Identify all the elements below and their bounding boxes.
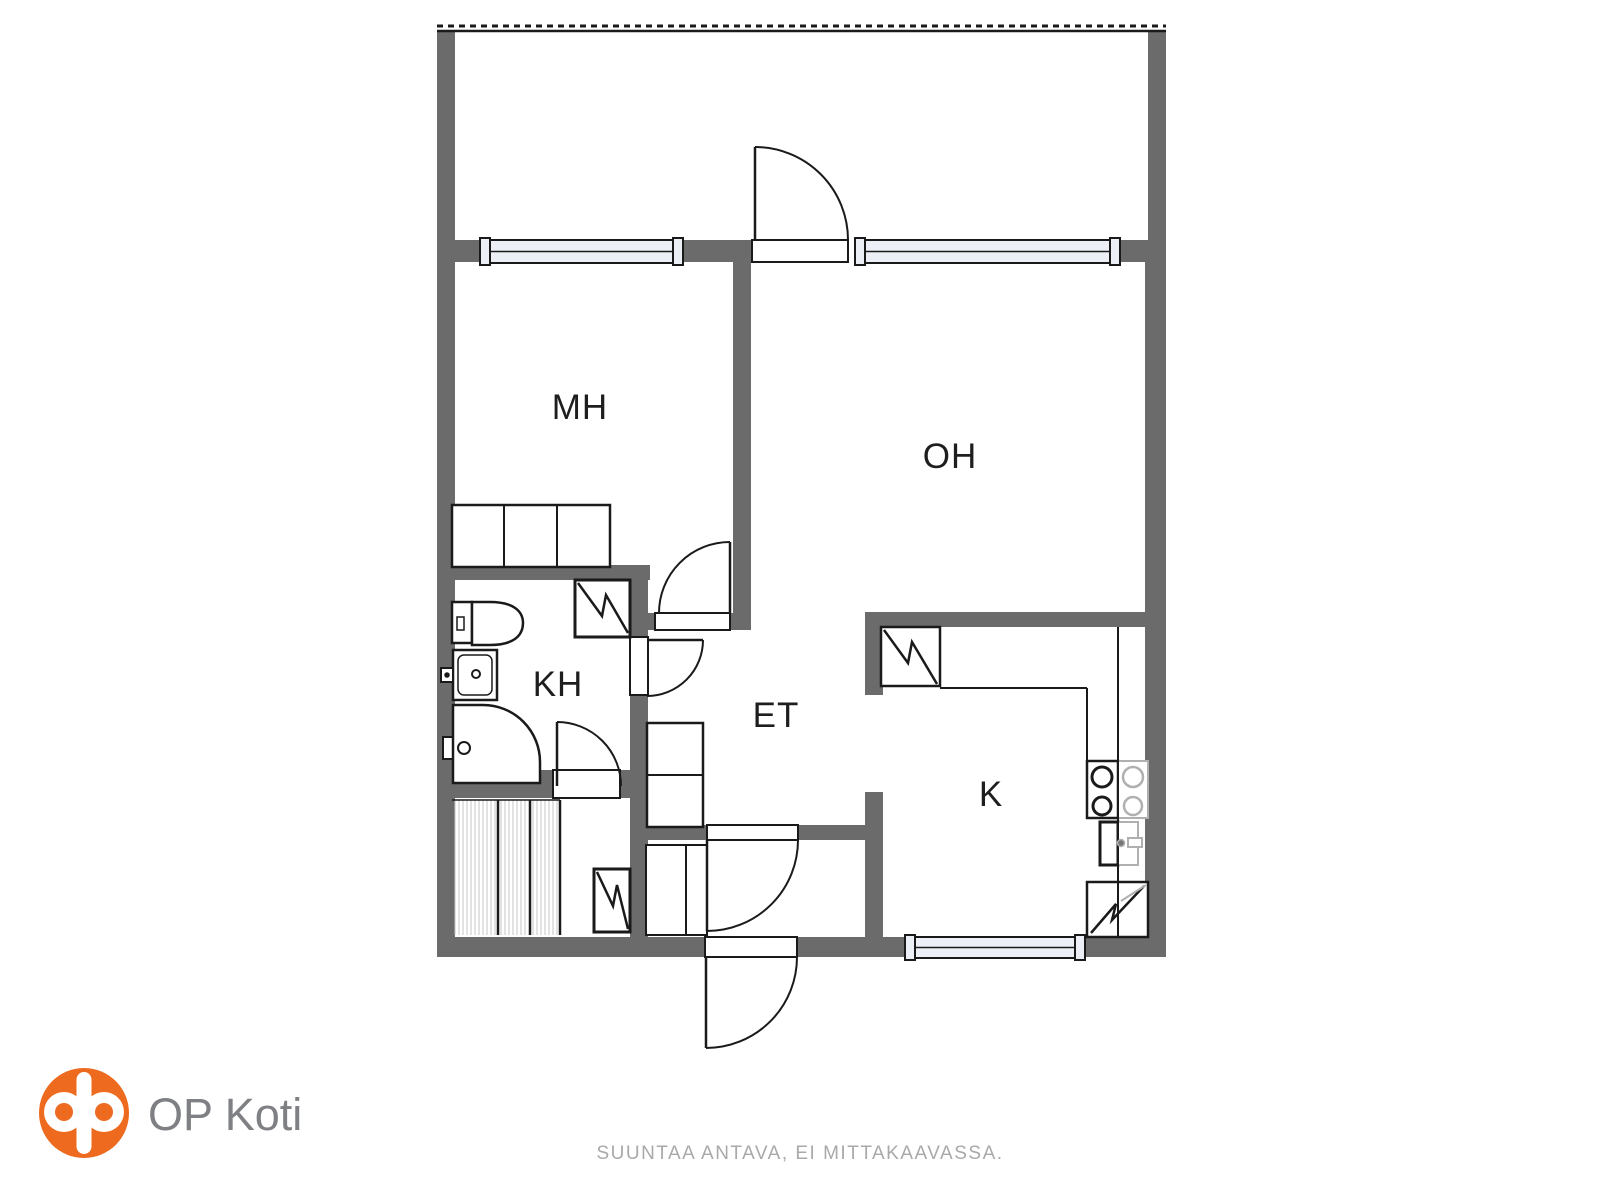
sauna-door-threshold (553, 770, 620, 798)
toilet-button (457, 617, 464, 630)
op-logo-right-hole (95, 1103, 113, 1121)
kitchen-window-cap (1075, 935, 1085, 960)
room-label-livingroom: OH (923, 437, 978, 477)
kh-faucet-dot (445, 673, 449, 677)
kh-door-arc (647, 640, 703, 696)
room-label-bathroom: KH (533, 665, 584, 705)
room-label-hallway: ET (753, 696, 800, 736)
mh-oh-wall (733, 262, 751, 630)
oh-window-cap (855, 238, 865, 265)
window-band-mid (683, 240, 752, 262)
room-label-bedroom: MH (552, 388, 608, 428)
op-logo-left-hole (55, 1103, 73, 1121)
kitchen-sink (1100, 822, 1118, 865)
mh-door-threshold (655, 613, 730, 630)
balcony-left-wall (437, 30, 455, 242)
outer-right-wall (1145, 240, 1166, 957)
kitchen-faucet-dot (1118, 840, 1125, 847)
disclaimer-text: SUUNTAA ANTAVA, EI MITTAKAAVASSA. (0, 1143, 1600, 1165)
shower-enclosure (453, 705, 540, 783)
balcony-door-arc (755, 147, 848, 240)
vestibule-door-arc (707, 840, 798, 931)
vestibule-door-threshold (707, 825, 798, 840)
floor-plan-page: MH OH KH ET K OP Koti SUUNTAA ANTAVA, EI… (0, 0, 1600, 1200)
stove-ghost (1118, 761, 1148, 818)
outer-left-wall (437, 240, 455, 957)
kitchen-left-wall-bottom (865, 792, 883, 937)
kitchen-faucet-handle (1128, 838, 1142, 847)
front-door-threshold (705, 937, 797, 957)
front-door-arc (706, 957, 797, 1048)
balcony-door-threshold (752, 240, 848, 262)
window-band-right (1120, 240, 1148, 262)
toilet-bowl (472, 602, 523, 645)
balcony-right-wall (1148, 30, 1166, 242)
stove (1087, 761, 1118, 818)
kh-door-threshold (630, 637, 648, 695)
mh-window-cap (480, 238, 490, 265)
kitchen-window-cap (905, 935, 915, 960)
floor-plan-drawing (0, 0, 1600, 1200)
room-label-kitchen: K (979, 775, 1003, 815)
mh-wardrobe (452, 505, 610, 567)
oh-window-cap (1110, 238, 1120, 265)
kh-sink-basin (458, 655, 492, 695)
kh-bottom-wall-right (620, 770, 648, 798)
op-koti-wordmark: OP Koti (148, 1089, 302, 1141)
mh-window-cap (673, 238, 683, 265)
window-band-left (455, 240, 480, 262)
mh-door-arc (659, 542, 730, 613)
oh-kitchen-wall (865, 612, 1166, 627)
vestibule-cabinet (646, 845, 707, 935)
